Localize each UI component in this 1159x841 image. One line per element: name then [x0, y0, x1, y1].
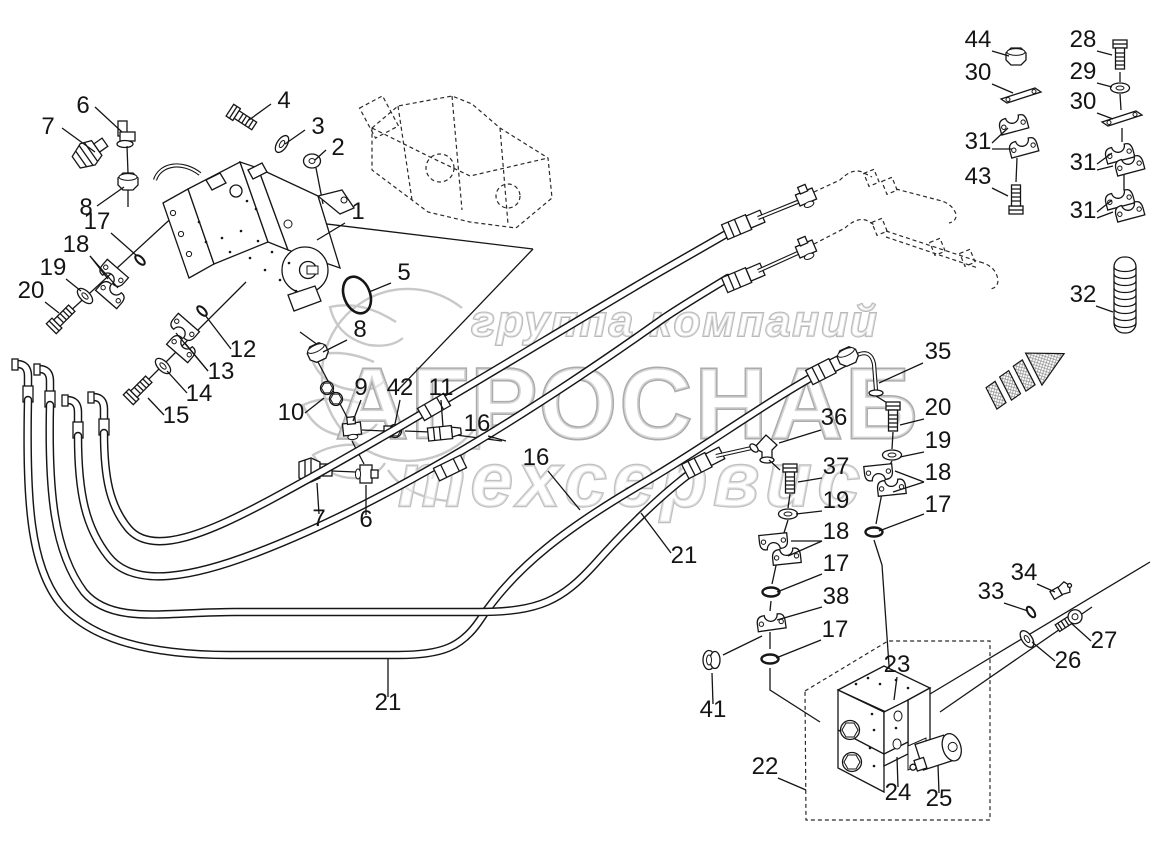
callout-leader-line	[879, 514, 924, 531]
part-number-label: 7	[312, 505, 325, 532]
part-number-label: 44	[965, 26, 992, 53]
part-number-label: 21	[671, 542, 698, 569]
bolt-4	[226, 104, 258, 132]
ghost-pump-outline	[360, 96, 552, 228]
parts-catalog-page: группа компаний АГРОСНАБ техсервис	[0, 0, 1159, 841]
part-number-label: 32	[1070, 281, 1097, 308]
part-number-label: 14	[186, 380, 213, 407]
part-number-label: 31	[1070, 149, 1097, 176]
callout-leader-line	[45, 302, 59, 313]
part-number-label: 17	[925, 491, 952, 518]
part-number-label: 33	[978, 578, 1005, 605]
part-number-label: 1	[351, 198, 364, 225]
part-number-label: 31	[1070, 197, 1097, 224]
callout-leader-line	[249, 104, 271, 120]
part-number-label: 34	[1011, 559, 1038, 586]
callout-leader-line	[66, 279, 81, 291]
clamp-column-right	[1102, 40, 1145, 333]
part-number-label: 21	[375, 689, 402, 716]
part-number-label: 17	[823, 550, 850, 577]
part-number-label: 30	[965, 59, 992, 86]
part-number-label: 16	[523, 444, 550, 471]
part-number-label: 8	[353, 316, 366, 343]
part-number-label: 20	[925, 394, 952, 421]
callout-leader-line	[778, 778, 806, 790]
valve-block-23	[838, 666, 930, 792]
callout-leader-line	[111, 233, 137, 256]
part-number-label: 35	[925, 338, 952, 365]
part-number-label: 18	[823, 518, 850, 545]
pump-assembly	[155, 162, 354, 311]
part-number-label: 10	[278, 399, 305, 426]
callout-leader-line	[1097, 166, 1113, 170]
part-number-label: 15	[163, 402, 190, 429]
part-number-label: 6	[359, 506, 372, 533]
callout-leader-line	[1004, 603, 1028, 611]
part-number-label: 22	[752, 753, 779, 780]
part-number-label: 20	[18, 277, 45, 304]
part-number-label: 19	[925, 427, 952, 454]
hydraulic-lines-diagram: группа компаний АГРОСНАБ техсервис	[0, 0, 1159, 841]
part-number-label: 36	[821, 404, 848, 431]
callout-leader-line	[97, 187, 124, 206]
part-number-label: 4	[277, 87, 290, 114]
part-number-label: 31	[965, 128, 992, 155]
part-number-label: 9	[354, 374, 367, 401]
callout-leader-line	[205, 315, 231, 349]
callout-leader-line	[167, 371, 187, 393]
part-number-label: 24	[885, 779, 912, 806]
direction-arrow-icon	[980, 338, 1072, 409]
part-number-label: 6	[76, 92, 89, 119]
watermark-line1: группа компаний	[471, 297, 879, 346]
callout-leader-line	[1097, 83, 1112, 87]
part-number-label: 19	[823, 487, 850, 514]
part-number-label: 28	[1070, 26, 1097, 53]
callout-leader-line	[148, 398, 164, 415]
callout-leader-line	[1097, 113, 1113, 119]
part-number-label: 11	[429, 374, 454, 401]
part-number-label: 25	[926, 785, 953, 812]
part-number-label: 5	[397, 259, 410, 286]
callout-leader-line	[777, 607, 822, 620]
part-number-label: 2	[331, 134, 344, 161]
callout-leader-line	[776, 640, 821, 658]
part-number-label: 7	[41, 113, 54, 140]
grommet-2	[304, 154, 321, 168]
part-number-label: 29	[1070, 58, 1097, 85]
elbow-fitting-6	[117, 121, 135, 148]
part-number-label: 30	[1070, 88, 1097, 115]
part-number-label: 23	[884, 651, 911, 678]
part-number-label: 17	[822, 616, 849, 643]
part-number-label: 27	[1091, 627, 1118, 654]
part-number-label: 37	[823, 453, 850, 480]
callout-leader-line	[1096, 306, 1113, 312]
callout-leader-line	[1071, 623, 1091, 641]
part-number-label: 41	[700, 696, 727, 723]
part-number-label: 3	[311, 113, 324, 140]
callout-leader-line	[95, 107, 122, 132]
part-number-label: 38	[823, 583, 850, 610]
spiral-wrap-32	[1114, 257, 1136, 333]
callout-leader-line	[1032, 642, 1055, 661]
o-ring-5	[338, 273, 376, 318]
callout-leader-line	[992, 84, 1013, 93]
callout-leader-line	[1037, 584, 1055, 592]
part-number-label: 16	[464, 410, 491, 437]
part-number-label: 42	[387, 374, 414, 401]
part-number-label: 18	[925, 459, 952, 486]
part-number-label: 43	[965, 163, 992, 190]
plug-41	[703, 636, 762, 670]
part-number-label: 26	[1055, 647, 1082, 674]
callout-leader-line	[1097, 51, 1112, 55]
part-number-label: 18	[63, 231, 90, 258]
callout-leader-line	[777, 574, 822, 592]
callout-leader-line	[992, 188, 1008, 196]
callout-leader-line	[1097, 212, 1113, 218]
